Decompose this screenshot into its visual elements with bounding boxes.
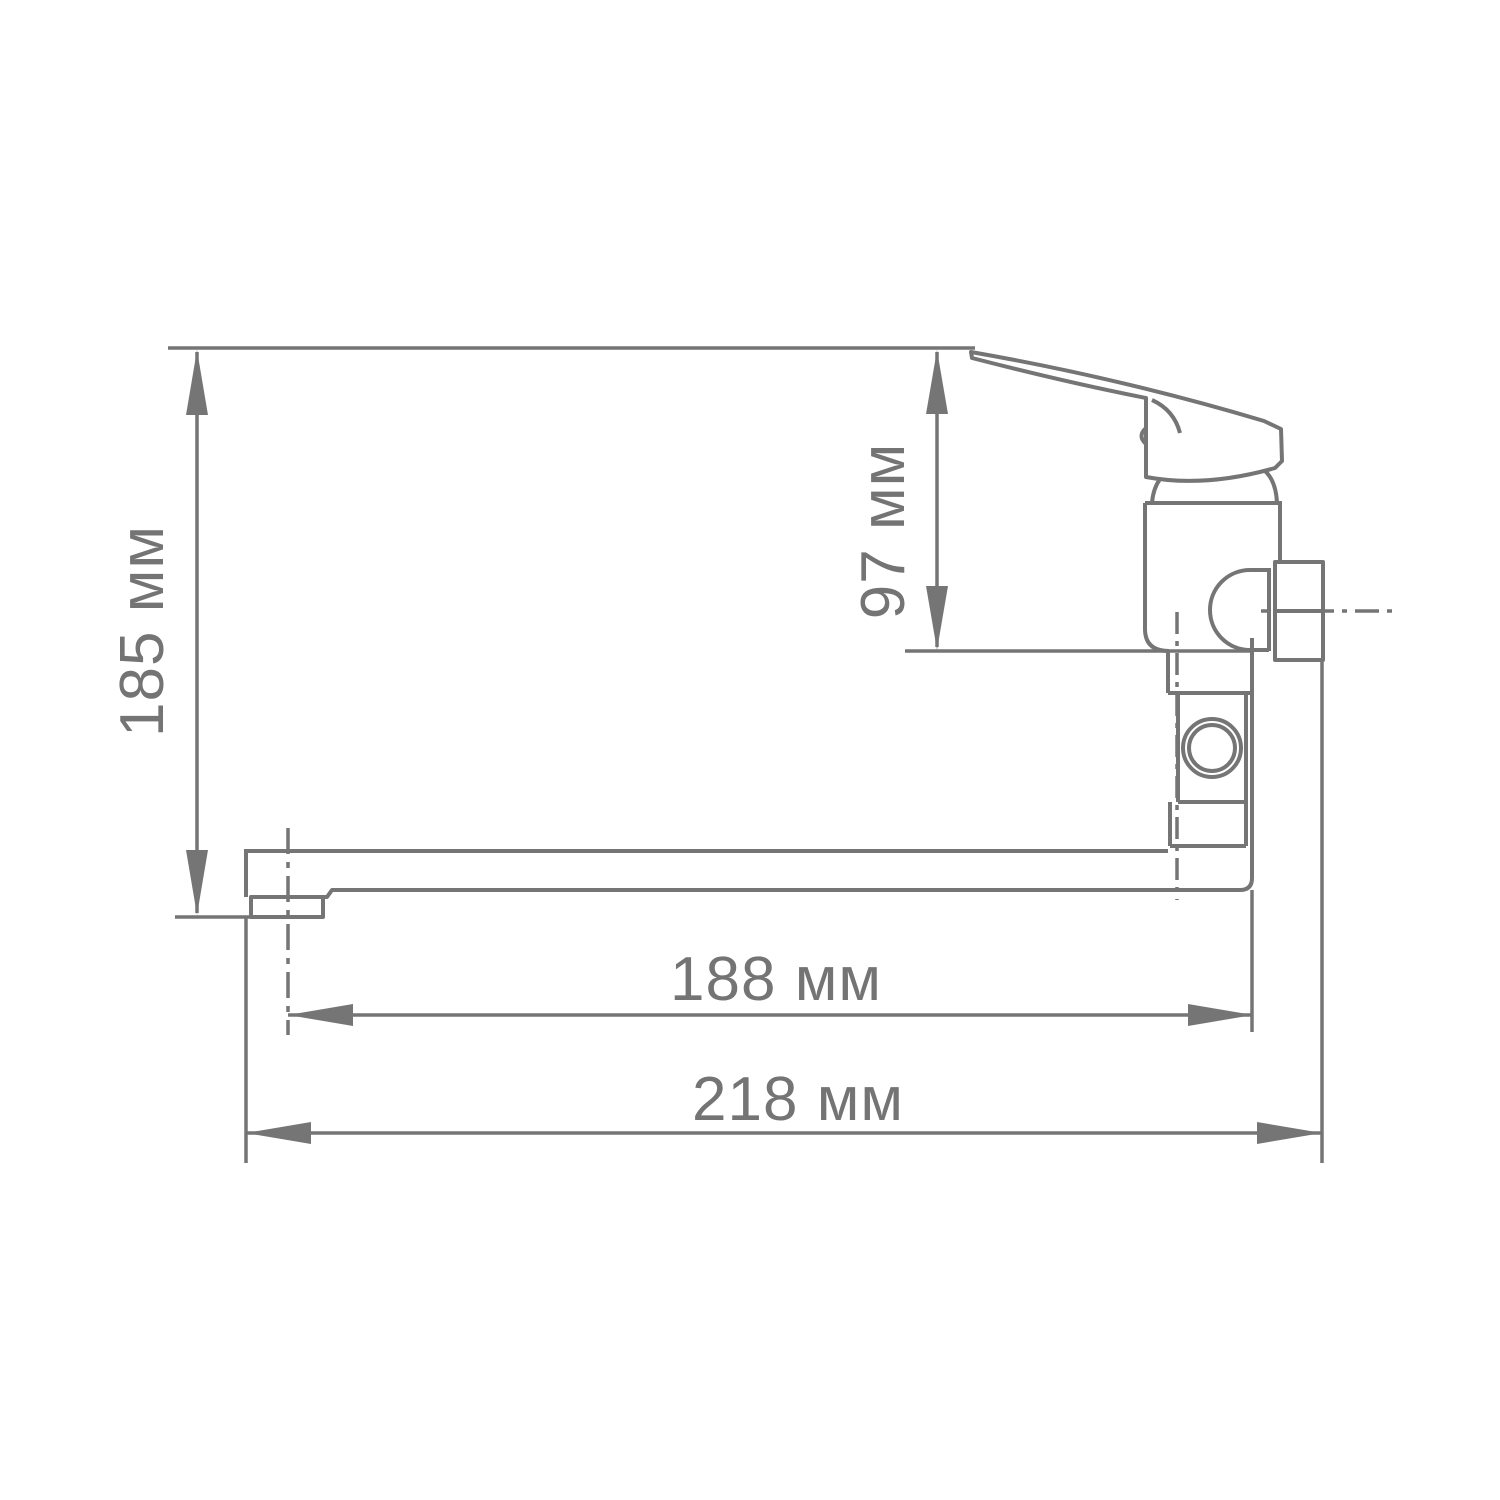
arrowhead-up-icon <box>186 350 208 415</box>
dimension-label-body-height: 97 мм <box>849 443 918 619</box>
arrowhead-down-icon <box>186 850 208 915</box>
dimension-label-overall-length: 218 мм <box>692 1065 904 1134</box>
arrowhead-down-icon <box>926 586 948 650</box>
dimension-overall-length: 218 мм <box>246 662 1322 1163</box>
dimension-body-height: 97 мм <box>849 350 1253 651</box>
arrowhead-left-icon <box>288 1004 353 1026</box>
diverter-knob-outer <box>1183 719 1241 777</box>
arrowhead-right-icon <box>1257 1122 1322 1144</box>
dimension-label-spout-reach: 188 мм <box>670 945 882 1014</box>
neck-right-arc <box>1265 471 1277 503</box>
arrowhead-right-icon <box>1188 1004 1253 1026</box>
faucet-outline <box>246 352 1392 1035</box>
spout-bottom-edge <box>251 890 1240 897</box>
arrowhead-up-icon <box>926 350 948 414</box>
wall-connector-capsule <box>1210 570 1269 650</box>
dimension-label-total-height: 185 мм <box>108 525 177 737</box>
diverter-knob-inner <box>1189 725 1235 771</box>
body-left-edge <box>1145 503 1169 651</box>
dimension-spout-reach: 188 мм <box>288 890 1253 1032</box>
neck-left-arc <box>1152 479 1160 503</box>
dimension-total-height: 185 мм <box>108 348 975 917</box>
handle-pivot-arc <box>1152 400 1180 433</box>
handle-lever <box>971 352 1282 481</box>
faucet-technical-drawing: 185 мм 97 мм 188 мм 218 мм <box>0 0 1500 1500</box>
arrowhead-left-icon <box>246 1122 311 1144</box>
